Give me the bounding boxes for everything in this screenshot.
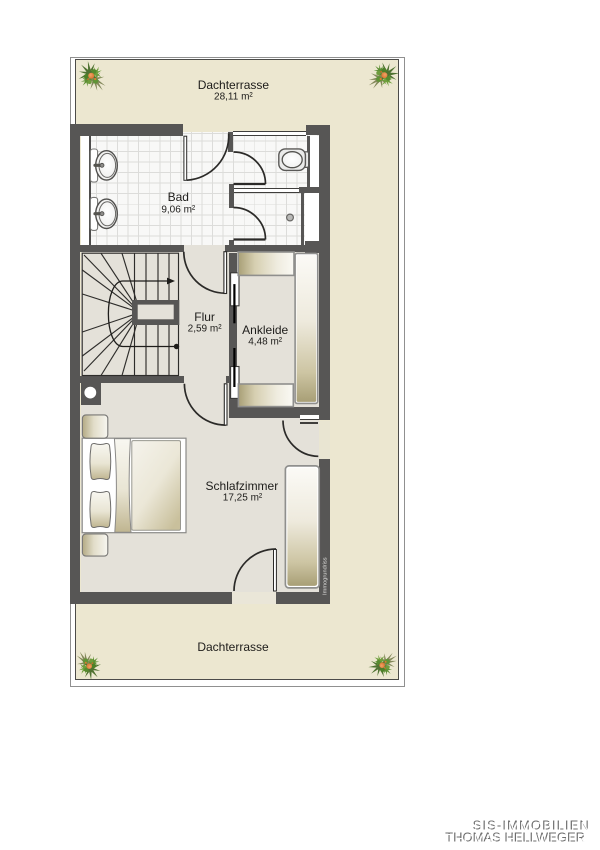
svg-text:Immogrundriss: Immogrundriss <box>323 557 329 595</box>
